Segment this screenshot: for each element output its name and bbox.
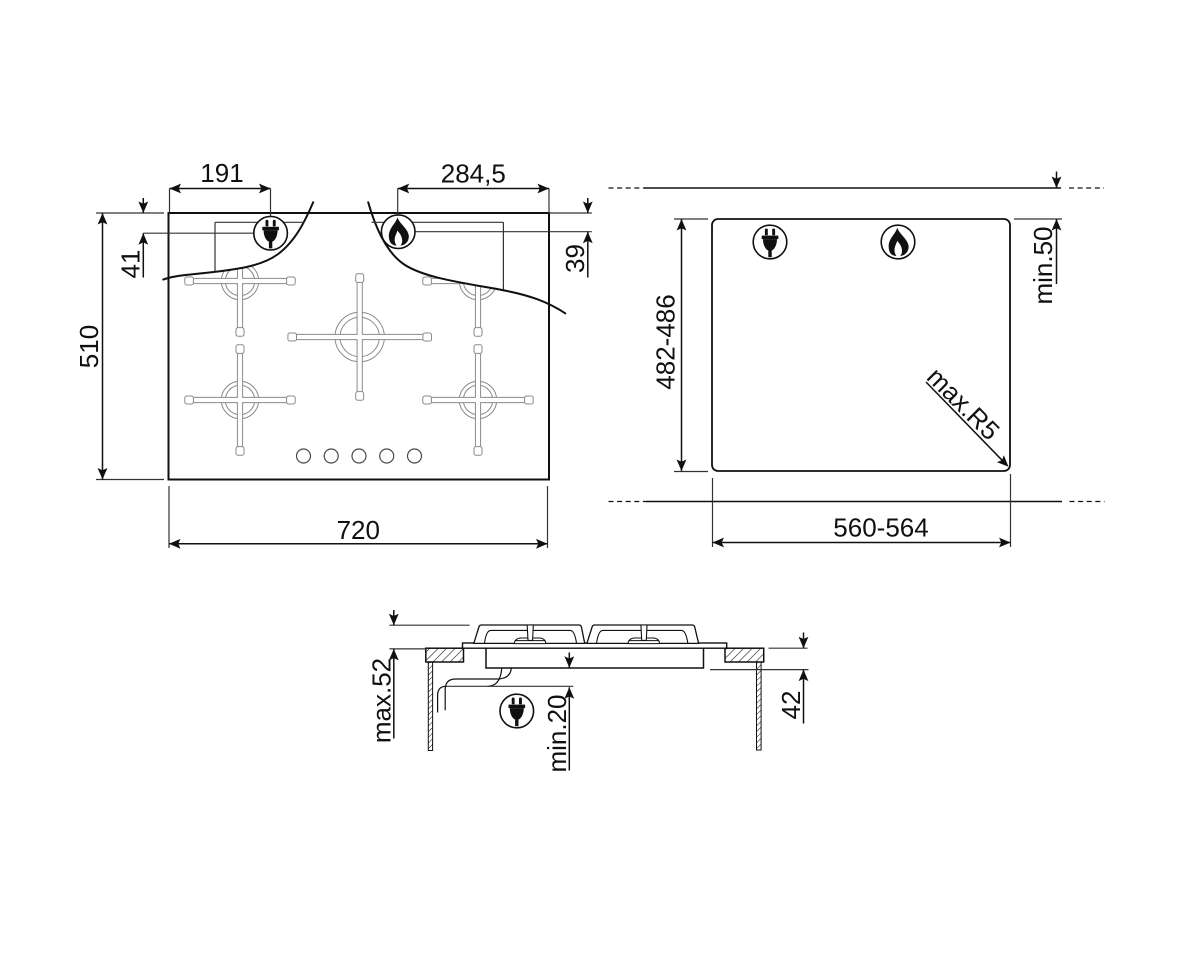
svg-text:191: 191 <box>200 158 243 188</box>
svg-text:min.50: min.50 <box>1028 226 1058 304</box>
svg-text:560-564: 560-564 <box>833 513 928 543</box>
svg-text:42: 42 <box>776 691 806 720</box>
svg-text:39: 39 <box>560 244 590 273</box>
svg-text:max.52: max.52 <box>367 658 397 743</box>
svg-text:482-486: 482-486 <box>651 294 681 389</box>
svg-text:720: 720 <box>337 515 380 545</box>
svg-text:510: 510 <box>74 325 104 368</box>
svg-text:41: 41 <box>116 250 146 279</box>
svg-text:284,5: 284,5 <box>441 159 506 189</box>
svg-text:min.20: min.20 <box>542 694 572 772</box>
